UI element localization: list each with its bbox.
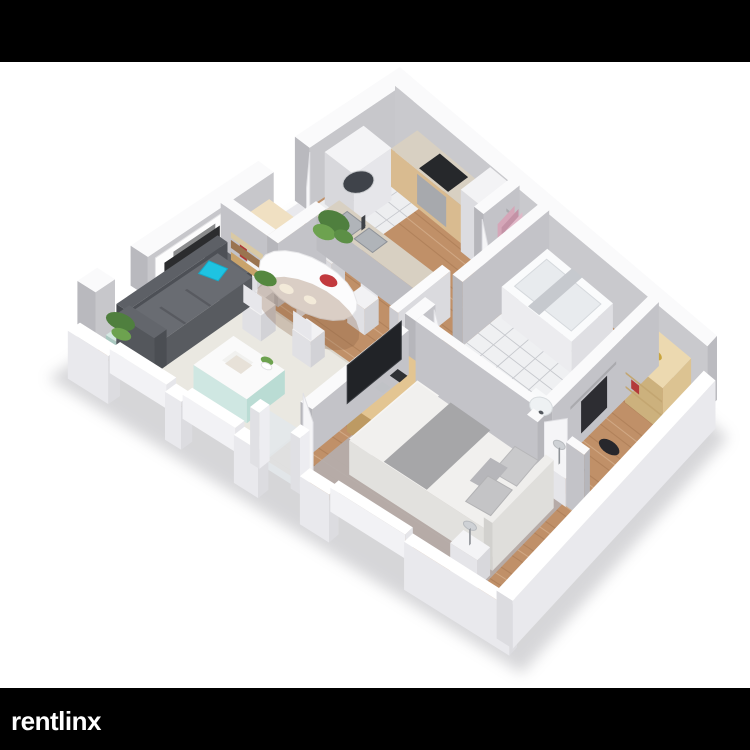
bath-wall-left-a [453, 275, 463, 347]
wall-sw-b [165, 392, 181, 450]
lamp-2-stem [469, 528, 471, 546]
rentlinx-logo: rentlinx [11, 708, 101, 734]
top-letterbox-bar [0, 0, 750, 62]
wall-se [497, 591, 513, 649]
bottom-letterbox-bar [0, 688, 750, 750]
floor-plan-rendering [0, 0, 750, 750]
sw-door-post-1 [250, 407, 259, 469]
sw-door-post-2 [291, 433, 300, 495]
lamp-1-stem [559, 447, 561, 465]
page: rentlinx [0, 0, 750, 750]
sw-door-post-1 [259, 405, 269, 469]
